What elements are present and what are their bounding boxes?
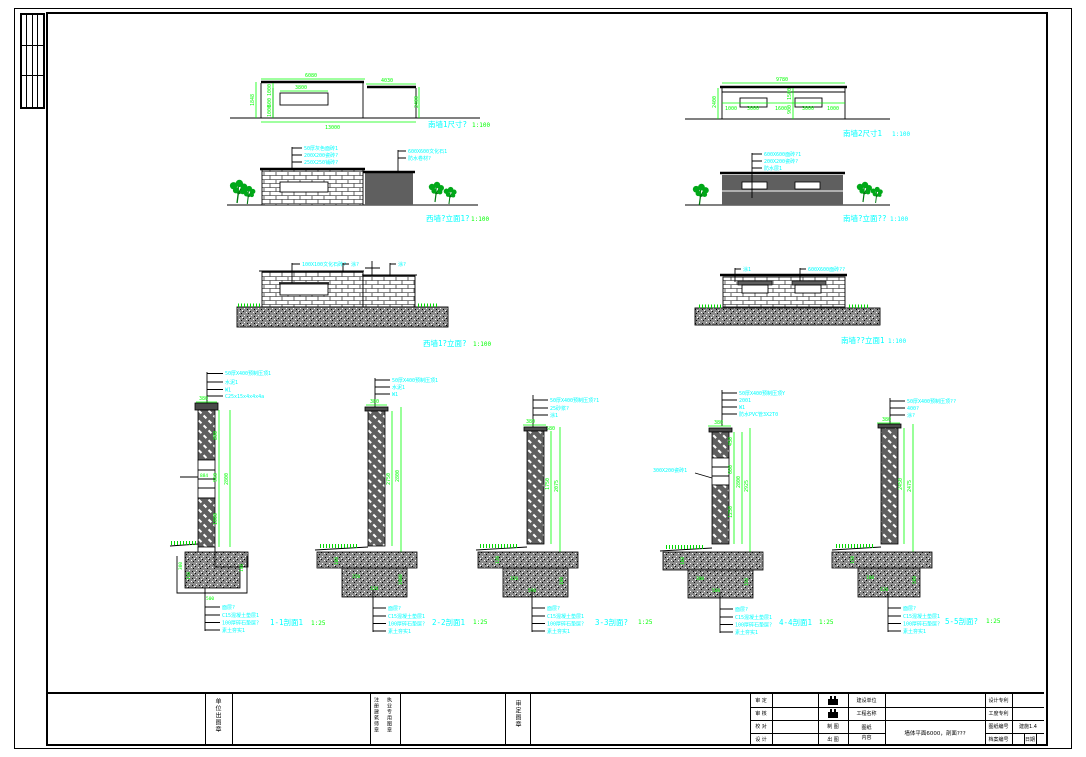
drawing-title: 南墙1尺寸? <box>428 119 467 129</box>
drawing-south-wall-elevation: 600X600面砖?1 200X200瓷砖? 防水层1 南墙?立面?? 1:10… <box>680 140 950 235</box>
callout-text: 防水PVC管3X2T0 <box>739 411 778 418</box>
section-title: 1-1剖面1 <box>270 617 303 627</box>
callout-text: C15混凝土垫层1 <box>547 613 584 620</box>
dim-label: 1000 <box>725 106 737 112</box>
stamp-strip-practice-seal: 执业专用图章 <box>386 697 393 733</box>
drawing-scale: 1:100 <box>471 216 489 223</box>
dim-label: 250 <box>352 574 360 580</box>
callout-text: 防水卷材? <box>408 155 431 162</box>
info-label-construction-unit: 建设单位 <box>848 697 885 704</box>
date-label: 日期 <box>1024 736 1036 743</box>
dim-label: 100 <box>680 557 686 565</box>
dim-label: 100 <box>559 577 565 585</box>
section-4-4: 50厚X400预制压顶Y 2001 W1 防水PVC管3X2T0 380 300… <box>650 360 835 645</box>
callout-text: C25x15x4x4x4a <box>225 394 264 400</box>
callout-text: C15混凝土垫层1 <box>903 613 940 620</box>
dim-label: 2925 <box>744 480 750 492</box>
dim-label: 380 <box>882 417 891 423</box>
callout-text: 200X200瓷砖? <box>304 152 338 159</box>
drawing-number-value: 建施1.4 <box>1012 723 1044 730</box>
grass-slope <box>480 544 518 548</box>
callout-text: 面层? <box>388 606 401 612</box>
callout-text: W1 <box>392 392 398 398</box>
footing: 100 300 150 500 <box>660 545 763 598</box>
bottom-leader: 面层? C15混凝土垫层1 100厚碎石垫层? 素土夯实1 <box>720 592 772 636</box>
callout-text: 素土夯实1 <box>222 627 245 634</box>
callout-text: 100厚碎石垫层? <box>388 621 425 628</box>
gray-wall <box>720 173 845 205</box>
survey-cross <box>365 261 380 275</box>
dim-label: 1000 <box>267 84 273 96</box>
callout-text: 素土夯实1 <box>388 628 411 635</box>
draw-label-chutu: 出 图 <box>818 736 848 743</box>
section-title: 4-4剖面1 <box>779 617 812 627</box>
dim-label: 100 <box>334 557 340 565</box>
dimensions: 1750 2075 <box>545 427 560 552</box>
dim-label: 2800 <box>224 473 230 485</box>
dim-label: 1250 <box>728 506 734 518</box>
callout-text: W1 <box>739 405 745 411</box>
drawing-title: 南墙??立面1 <box>841 335 885 345</box>
callout-text: 50厚X400预制压顶1 <box>225 370 271 377</box>
dimensions: 800 960 1000 2800 <box>213 410 230 547</box>
callout-text: 100厚碎石垫层? <box>222 620 259 627</box>
dim-label: 1750 <box>545 478 551 490</box>
dim-label: 500 <box>712 588 720 594</box>
section-title: 3-3剖面? <box>595 617 628 627</box>
dim-label: 120 <box>370 586 378 592</box>
callout-text: 50厚X400预制压顶?1 <box>550 397 599 404</box>
callout-text: 300X200瓷砖1 <box>653 467 687 474</box>
dim-label: 300 <box>178 562 184 570</box>
dim-label: 9780 <box>776 77 788 83</box>
callout-text: 100厚碎石垫层? <box>735 622 772 629</box>
dim-label: 380 <box>370 399 379 405</box>
dim-label: 1848 <box>250 94 256 106</box>
callout-text: 50厚X400预制压顶Y <box>739 390 785 397</box>
dim-label: 2400 <box>414 96 420 108</box>
dim-label: 500 <box>206 596 214 602</box>
dim-label: 450 <box>728 437 734 446</box>
dim-label: 120 <box>880 587 888 593</box>
drawing-title: 南墙?立面?? <box>843 213 887 223</box>
dim-label: 2400 <box>712 96 718 108</box>
dim-label: 1000 <box>267 105 273 117</box>
footing: 300 150 500 180 <box>170 541 248 602</box>
brick-wall <box>260 169 365 205</box>
grass-slope <box>170 541 198 545</box>
dim-label: 1600 <box>775 106 787 112</box>
dim-label: 2750 <box>386 473 392 485</box>
callout-text: 600X600面砖?? <box>808 266 845 273</box>
grass-strip <box>416 304 438 308</box>
info-label-drawing: 图纸 <box>848 724 885 731</box>
stamp-icon <box>828 699 838 705</box>
approval-label-shenhe: 审 核 <box>750 710 772 717</box>
grass-slope <box>318 544 358 548</box>
drawing-scale: 1:100 <box>888 338 906 345</box>
drawing-south-wall-2-dims: 9780 1000 3000 1600 3000 1000 2400 1500 … <box>680 60 950 145</box>
dim-label: 300 <box>696 576 704 582</box>
footing: 100 250 1000 120 <box>315 544 417 597</box>
dim-label: 150 <box>186 572 192 580</box>
dim-label: 3000 <box>747 106 759 112</box>
dim-label: 6080 <box>305 73 317 79</box>
draw-label-zhitu: 制 图 <box>818 723 848 730</box>
right-label-archive-no: 档案编号 <box>985 736 1012 743</box>
footing: 120 150 100 500 <box>476 544 578 597</box>
dim-label: 3000 <box>802 106 814 112</box>
wall-section: 380 300X200瓷砖1 <box>653 420 732 544</box>
section-title: 5-5剖面? <box>945 616 978 626</box>
top-leader: 50厚X400预制压顶Y 2001 W1 防水PVC管3X2T0 <box>722 390 785 426</box>
dimensions: 9780 1000 3000 1600 3000 1000 2400 1500 … <box>712 77 845 119</box>
cad-drawing-sheet: 6080 4030 3800 13000 1848 1000 600 1000 … <box>0 0 1086 757</box>
dim-label: 380 <box>526 419 535 425</box>
dim-label: 13000 <box>325 125 340 131</box>
drawing-scale: 1:100 <box>472 122 490 129</box>
callout-text: 50厚灰色面砖1 <box>304 145 338 152</box>
stamp-strip-unit-seal: 单位出图章 <box>213 698 222 733</box>
callout-text: W1 <box>225 388 231 394</box>
dim-label: 180 <box>239 564 245 572</box>
callout-text: 250X250铺砖? <box>304 159 338 166</box>
dimensions: 2450 2475 <box>898 424 913 552</box>
section-2-2: 50厚X400预制压顶1 水泥1 W1 380 2750 2800 100 25… <box>310 360 485 645</box>
dim-label: 2800 <box>736 476 742 488</box>
dim-label: 120 <box>495 556 501 564</box>
grass-strip <box>847 305 868 309</box>
signature-grid <box>20 13 45 109</box>
callout-text: 面层? <box>903 606 916 612</box>
dim-label: 960 <box>213 473 219 482</box>
callout-text: 涂1 <box>550 412 558 419</box>
drawing-title: 西墙?立面1? <box>426 213 470 223</box>
dim-label: 2075 <box>554 480 560 492</box>
callout-text: 涂? <box>907 412 915 419</box>
drawing-title: 西墙1?立面? <box>423 338 467 348</box>
foundation <box>237 304 448 328</box>
dim-label: 2800 <box>395 470 401 482</box>
dim-label: 3800 <box>295 85 307 91</box>
drawing-scale: 1:100 <box>892 131 910 138</box>
footing: 150 100 500 120 <box>832 544 932 597</box>
callout-text: 2001 <box>739 398 751 404</box>
callout-text: 100厚碎石垫层? <box>547 621 584 628</box>
callout-text: 涂1 <box>743 266 751 273</box>
brick-wall <box>720 275 847 307</box>
drawing-west-wall-elevation: 50厚灰色面砖1 200X200瓷砖? 250X250铺砖? 600X600文化… <box>225 140 495 235</box>
drawing-content-value: 墙体平面6000，剖面??? <box>885 729 985 737</box>
callout-text: 600X600面砖?1 <box>764 151 801 158</box>
callout-text: 200X200瓷砖? <box>764 158 798 165</box>
dim-label: 150 <box>850 556 856 564</box>
section-3-3: 50厚X400预制压顶?1 25砂浆? 涂1 380 580 1750 2075… <box>470 360 650 645</box>
callout-text: 素土夯实1 <box>903 628 926 635</box>
dim-label: 380 <box>199 396 208 402</box>
approval-label-jiaodui: 校 对 <box>750 723 772 730</box>
callout-text: 面层? <box>735 607 748 613</box>
dim-label: 2475 <box>907 480 913 492</box>
grass-slope <box>665 545 705 549</box>
callout-text: 600X600文化石1 <box>408 148 447 155</box>
callout-text: 素土夯实1 <box>735 629 758 636</box>
callout-text: 涂? <box>351 261 359 268</box>
callout-text: 100厚碎石垫层? <box>903 621 940 628</box>
stamp-strip-registered-architect: 注册建筑师章 <box>373 697 380 733</box>
drawing-title: 南墙2尺寸1 <box>843 128 882 138</box>
callout-text: 素土夯实1 <box>547 628 570 635</box>
dim-label: 600 <box>728 465 734 474</box>
dim-label: 150 <box>510 576 518 582</box>
bottom-leader: 面层? C15混凝土垫层1 100厚碎石垫层? 素土夯实1 <box>888 592 940 635</box>
section-5-5: 50厚X400预制压顶?? 400? 涂? 380 2450 2475 150 … <box>820 360 1005 645</box>
dim-label: 380 <box>714 420 723 426</box>
section-title: 2-2剖面1 <box>432 617 465 627</box>
right-label-project: 工度专利 <box>985 710 1012 717</box>
dim-label: 1000 <box>213 513 219 525</box>
callout-text: 面层? <box>222 605 235 611</box>
dim-label: 884 <box>200 473 208 479</box>
dim-label: 2450 <box>898 478 904 490</box>
dim-label: 1000 <box>827 106 839 112</box>
callout-text: C15混凝土垫层1 <box>388 613 425 620</box>
callout-text: C15混凝土垫层1 <box>222 612 259 619</box>
drawing-west-wall-foundation-elevation: 100X100文化石砖? 涂? 涂? 西墙1?立面? 1:100 <box>225 245 495 355</box>
dim-label: 500 <box>912 576 918 584</box>
drawing-scale: 1:100 <box>890 216 908 223</box>
right-label-drawing-no: 图纸编号 <box>985 723 1012 730</box>
dim-label: 900 <box>787 105 793 114</box>
callout-text: 水泥1 <box>225 379 238 386</box>
dim-label: 800 <box>213 431 219 440</box>
gray-wall <box>363 172 415 205</box>
top-leader: 50厚X400预制压顶?? 400? 涂? <box>890 398 956 428</box>
callout-text: 400? <box>907 406 919 412</box>
callout-text: 50厚X400预制压顶1 <box>392 377 438 384</box>
callout-text: 水泥1 <box>392 384 405 391</box>
bottom-leader: 面层? C15混凝土垫层1 100厚碎石垫层? 素土夯实1 <box>205 588 259 634</box>
drawing-south-wall-1-dims: 6080 4030 3800 13000 1848 1000 600 1000 … <box>225 60 495 142</box>
info-label-project-name: 工程名称 <box>848 710 885 717</box>
foundation <box>695 305 880 326</box>
callout-text: C15混凝土垫层1 <box>735 614 772 621</box>
dimensions: 450 600 1250 2800 2925 <box>728 428 750 552</box>
dim-label: 150 <box>744 578 750 586</box>
section-scale: 1:25 <box>986 618 1001 625</box>
drawing-south-wall-foundation-elevation: 涂1 600X600面砖?? 南墙??立面1 1:100 <box>680 245 940 355</box>
dim-label: 100 <box>866 575 874 581</box>
drawing-scale: 1:100 <box>473 341 491 348</box>
callout-text: 100X100文化石砖? <box>302 261 346 268</box>
dim-label: 1500 <box>787 88 793 100</box>
grass-strip <box>238 304 260 308</box>
callout-text: 25砂浆? <box>550 405 569 412</box>
right-label-design: 设计专利 <box>985 697 1012 704</box>
approval-label-shending: 审 定 <box>750 697 772 704</box>
wall-section: 380 <box>365 399 388 546</box>
callout-text: 50厚X400预制压顶?? <box>907 398 956 405</box>
stamp-strip-approval-seal: 审定图章 <box>513 700 522 728</box>
grass-slope <box>835 544 875 548</box>
title-block: 单位出图章 注册建筑师章 执业专用图章 审定图章 审 定 审 核 校 对 设 计… <box>46 692 1044 746</box>
info-label-content: 内容 <box>848 734 885 741</box>
callout-text: 面层? <box>547 606 560 612</box>
grass-strip <box>698 305 722 309</box>
callout-text: 涂? <box>398 261 406 268</box>
stamp-icon <box>828 712 838 718</box>
approval-label-sheji: 设 计 <box>750 736 772 743</box>
callout-text: 防水层1 <box>764 165 782 172</box>
dim-label: 1000 <box>398 574 404 585</box>
dimensions: 2750 2800 <box>386 407 401 552</box>
dim-label: 4030 <box>381 78 393 84</box>
